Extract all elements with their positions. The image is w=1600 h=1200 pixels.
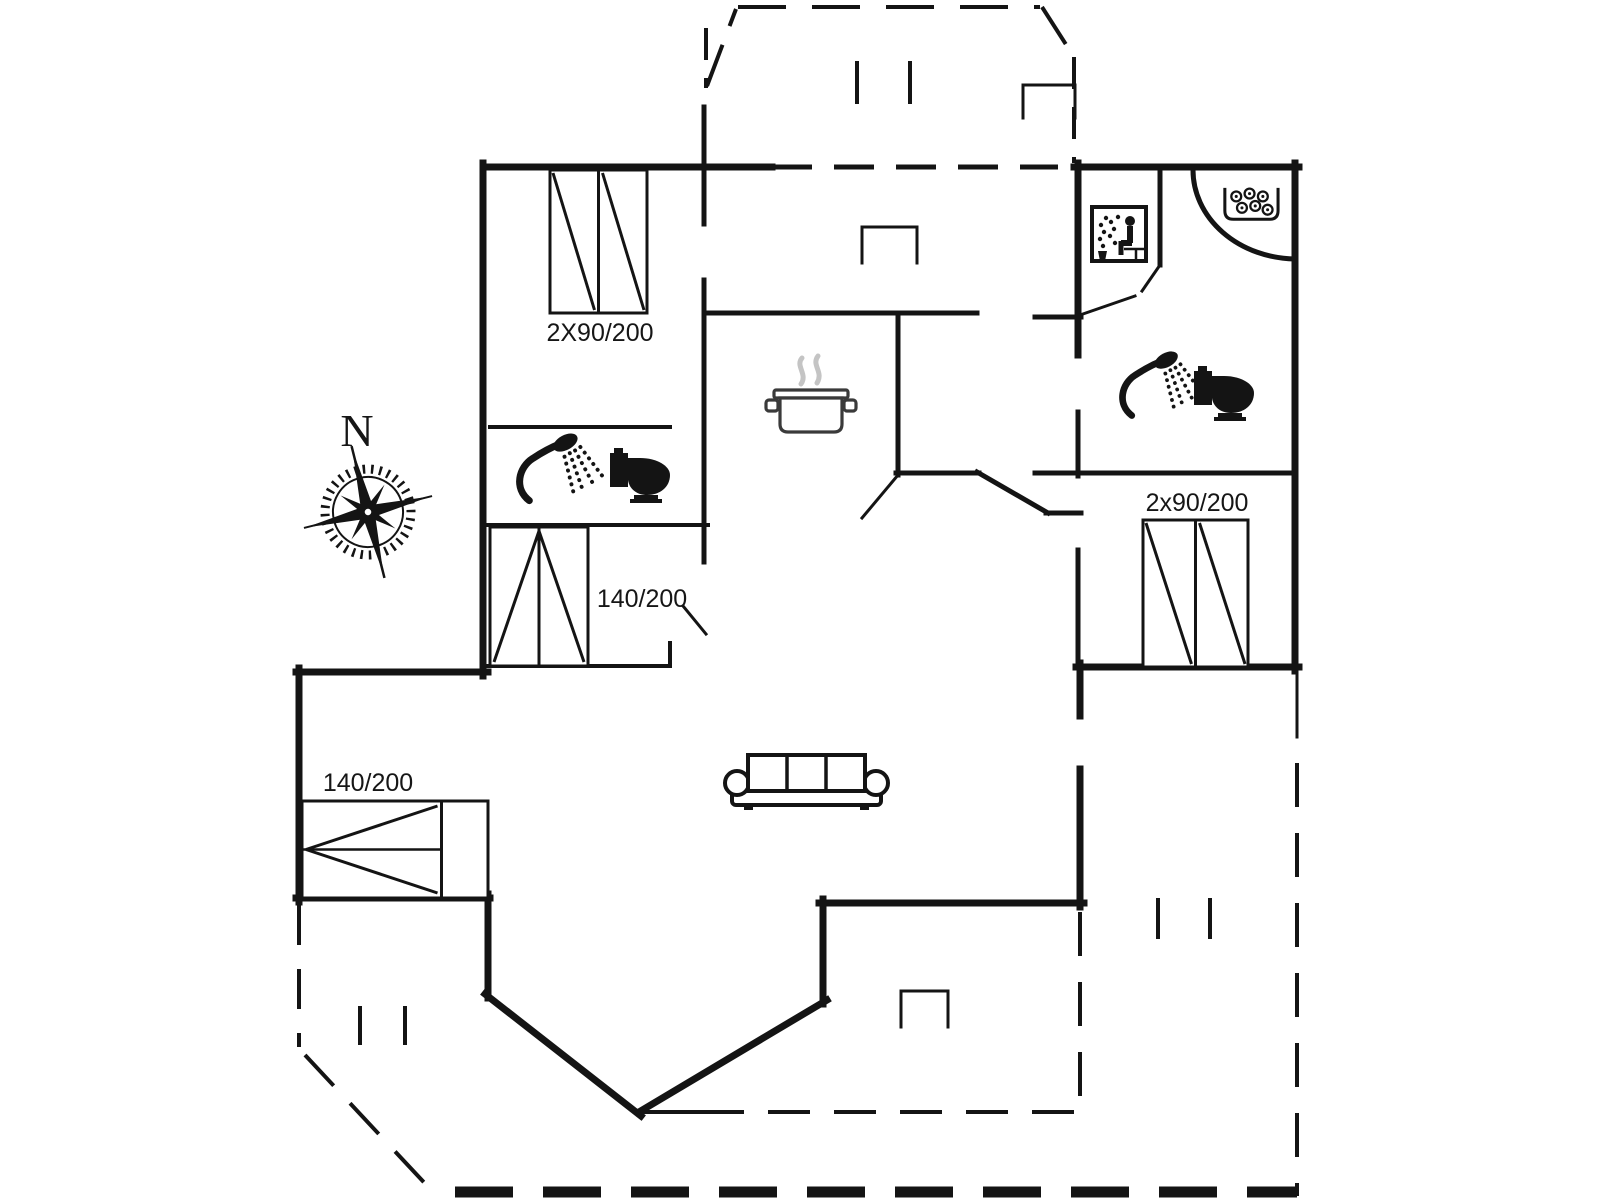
shower-icon bbox=[520, 430, 603, 501]
deck-edge-dashed bbox=[305, 1055, 432, 1191]
bed-bottom-left bbox=[302, 801, 488, 898]
icons-layer bbox=[288, 188, 1279, 810]
dim-bed-mid-left: 140/200 bbox=[597, 585, 687, 613]
wall-segment bbox=[1142, 265, 1160, 291]
floor-plan-page: 2X90/200140/200140/2002x90/200N bbox=[0, 0, 1600, 1200]
toilet-icon bbox=[1194, 366, 1254, 421]
dim-bed-right: 2x90/200 bbox=[1146, 489, 1249, 517]
dim-bed-bottom-left: 140/200 bbox=[323, 769, 413, 797]
shower-icon bbox=[1123, 348, 1202, 416]
wall-segment bbox=[1080, 296, 1135, 315]
deck-edge-dashed bbox=[707, 9, 736, 86]
wall-segment bbox=[977, 472, 1048, 513]
whirlpool-icon bbox=[1225, 188, 1278, 219]
bed-right bbox=[1143, 520, 1248, 667]
toilet-icon bbox=[610, 448, 670, 503]
deck-edge-dashed bbox=[1042, 7, 1074, 57]
wall-segment bbox=[485, 994, 641, 1116]
sofa-icon bbox=[725, 755, 888, 810]
dim-bed-top-left: 2X90/200 bbox=[546, 319, 653, 347]
bed-top-left bbox=[550, 170, 647, 313]
cooking-pot-icon bbox=[766, 356, 856, 432]
bed-mid-left bbox=[490, 527, 588, 666]
compass-north-label: N bbox=[340, 405, 373, 456]
sauna-icon bbox=[1092, 207, 1146, 261]
wall-segment bbox=[862, 475, 898, 518]
floor-plan-svg: 2X90/200140/200140/2002x90/200N bbox=[0, 0, 1600, 1200]
wall-segment bbox=[639, 1000, 827, 1112]
